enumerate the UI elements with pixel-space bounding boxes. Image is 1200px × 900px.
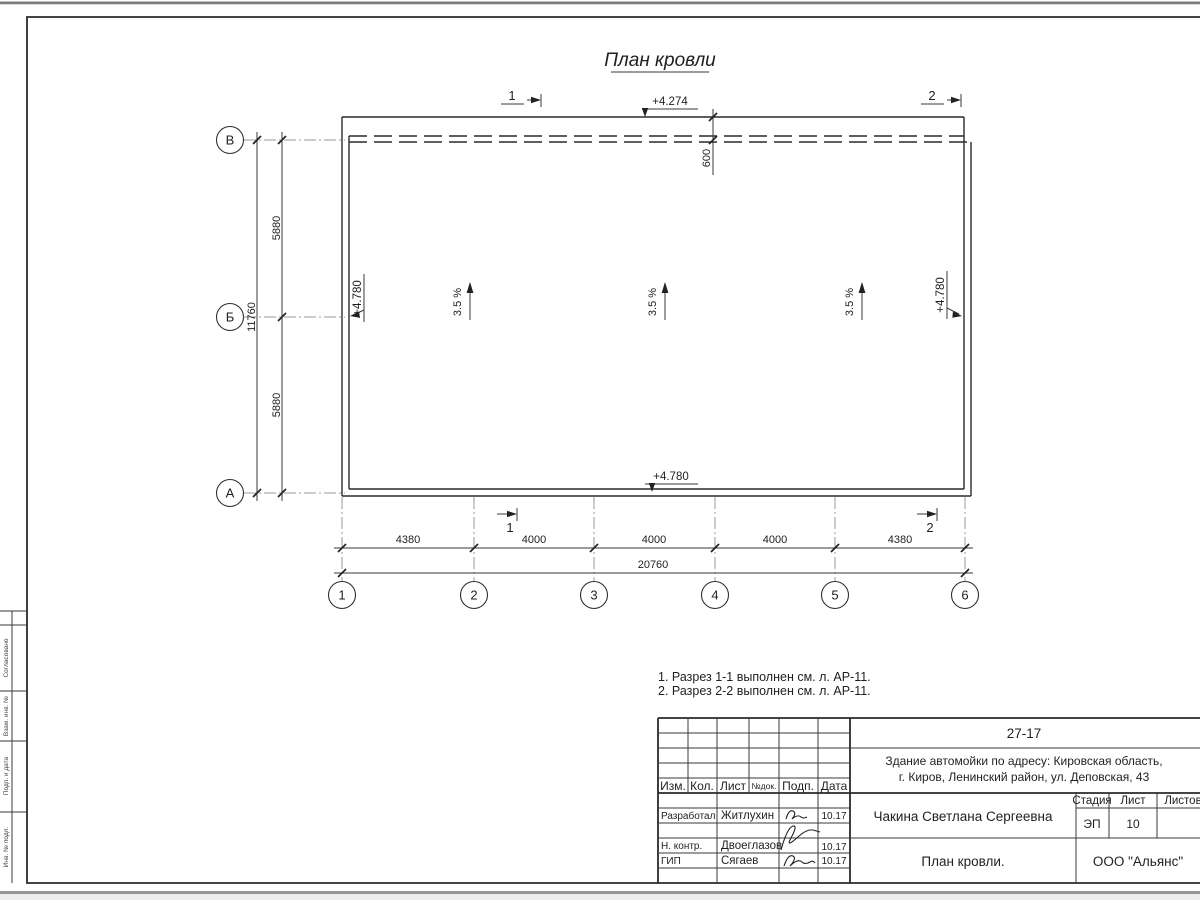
tb-role-norm-control: Н. контр. (661, 841, 702, 852)
tb-sheets-label: Листов (1164, 795, 1200, 807)
tb-sheet-name: План кровли. (921, 854, 1004, 869)
tb-name-developer: Житлухин (721, 810, 774, 822)
dim-bottom-2: 4000 (522, 534, 546, 546)
tb-address-line2: г. Киров, Ленинский район, ул. Деповская… (899, 770, 1150, 784)
signature-developer (786, 811, 807, 819)
tb-role-developer: Разработал (661, 810, 716, 822)
tb-address-line1: Здание автомойки по адресу: Кировская об… (885, 754, 1162, 768)
dim-bottom-total: 20760 (638, 559, 669, 571)
dimension-texts: 4380 4000 4000 4000 4380 20760 5880 5880… (246, 149, 912, 571)
tb-name-gip: Сягаев (721, 855, 758, 867)
section-1-top-label: 1 (508, 88, 515, 103)
side-stamp-agreed: Согласовано (3, 638, 10, 677)
axis-col-1: 1 (338, 588, 345, 603)
section-1-bottom-label: 1 (506, 520, 513, 535)
axis-col-4: 4 (711, 588, 718, 603)
tb-col-list: Лист (720, 779, 747, 793)
dim-left-1: 5880 (271, 216, 283, 240)
slope-label-2: 3.5 % (647, 288, 659, 316)
dim-left-2: 5880 (271, 393, 283, 417)
tb-author: Чакина Светлана Сергеевна (873, 809, 1053, 824)
tb-col-izm: Изм. (660, 779, 686, 793)
side-stamp: Согласовано Взам. инв. № Подп. и дата Ин… (0, 611, 27, 883)
section-marks: 1 2 1 2 (497, 88, 961, 535)
tb-stage-value: ЭП (1083, 817, 1100, 831)
tb-company: ООО "Альянс" (1093, 854, 1183, 869)
note-line-1: 1. Разрез 1-1 выполнен см. л. АР-11. (658, 670, 871, 684)
section-2-top-label: 2 (928, 88, 935, 103)
dim-canopy-600: 600 (701, 149, 713, 167)
drawing-title: План кровли (604, 50, 716, 71)
tb-sheet-label: Лист (1121, 795, 1147, 807)
tb-sheet-value: 10 (1126, 817, 1140, 831)
tb-role-gip: ГИП (661, 856, 681, 867)
dim-bottom-1: 4380 (396, 534, 420, 546)
tb-col-data: Дата (821, 779, 848, 793)
axis-row-a: А (226, 486, 235, 501)
dim-bottom-5: 4380 (888, 534, 912, 546)
slope-label-3: 3.5 % (844, 288, 856, 316)
tb-doc-number: 27-17 (1007, 726, 1042, 741)
elevation-right: +4.780 (935, 277, 947, 313)
side-stamp-cell1: Взам. инв. № (3, 696, 10, 736)
tb-col-kol: Кол. (690, 779, 714, 793)
axis-col-2: 2 (470, 588, 477, 603)
axis-row-v: В (226, 133, 235, 148)
dimension-lines (253, 109, 973, 577)
axis-col-3: 3 (590, 588, 597, 603)
notes: 1. Разрез 1-1 выполнен см. л. АР-11. 2. … (658, 670, 871, 698)
slope-arrows: 3.5 % 3.5 % 3.5 % (452, 282, 865, 320)
tb-name-norm-control: Двоеглазов (721, 840, 782, 852)
title-block: Изм. Кол. Лист №док. Подп. Дата Разработ… (658, 718, 1200, 883)
drawing-sheet: Согласовано Взам. инв. № Подп. и дата Ин… (0, 0, 1200, 900)
axis-col-6: 6 (961, 588, 968, 603)
dim-left-total: 11760 (246, 302, 258, 332)
slope-label-1: 3.5 % (452, 288, 464, 316)
tb-stage-label: Стадия (1072, 795, 1111, 807)
tb-date-gip: 10.17 (821, 856, 846, 867)
dim-bottom-4: 4000 (763, 534, 787, 546)
axis-bubbles: В Б А 1 2 3 4 5 6 (217, 127, 979, 609)
signature-gip (784, 856, 815, 866)
axis-lines (244, 140, 965, 581)
tb-date-developer: 10.17 (821, 811, 846, 822)
side-stamp-cell2: Подп. и дата (3, 756, 10, 795)
tb-date-norm-control: 10.17 (821, 842, 846, 853)
tb-col-ndok: №док. (752, 781, 777, 791)
axis-row-b: Б (226, 310, 235, 325)
elevation-bottom: +4.780 (653, 471, 689, 483)
axis-col-5: 5 (831, 588, 838, 603)
elevation-top: +4.274 (652, 96, 688, 108)
dim-bottom-3: 4000 (642, 534, 666, 546)
side-stamp-cell3: Инв. № подл. (3, 827, 10, 868)
tb-col-podp: Подп. (782, 779, 814, 793)
roof-plan-canvas: Согласовано Взам. инв. № Подп. и дата Ин… (0, 0, 1200, 900)
note-line-2: 2. Разрез 2-2 выполнен см. л. АР-11. (658, 684, 871, 698)
section-2-bottom-label: 2 (926, 520, 933, 535)
